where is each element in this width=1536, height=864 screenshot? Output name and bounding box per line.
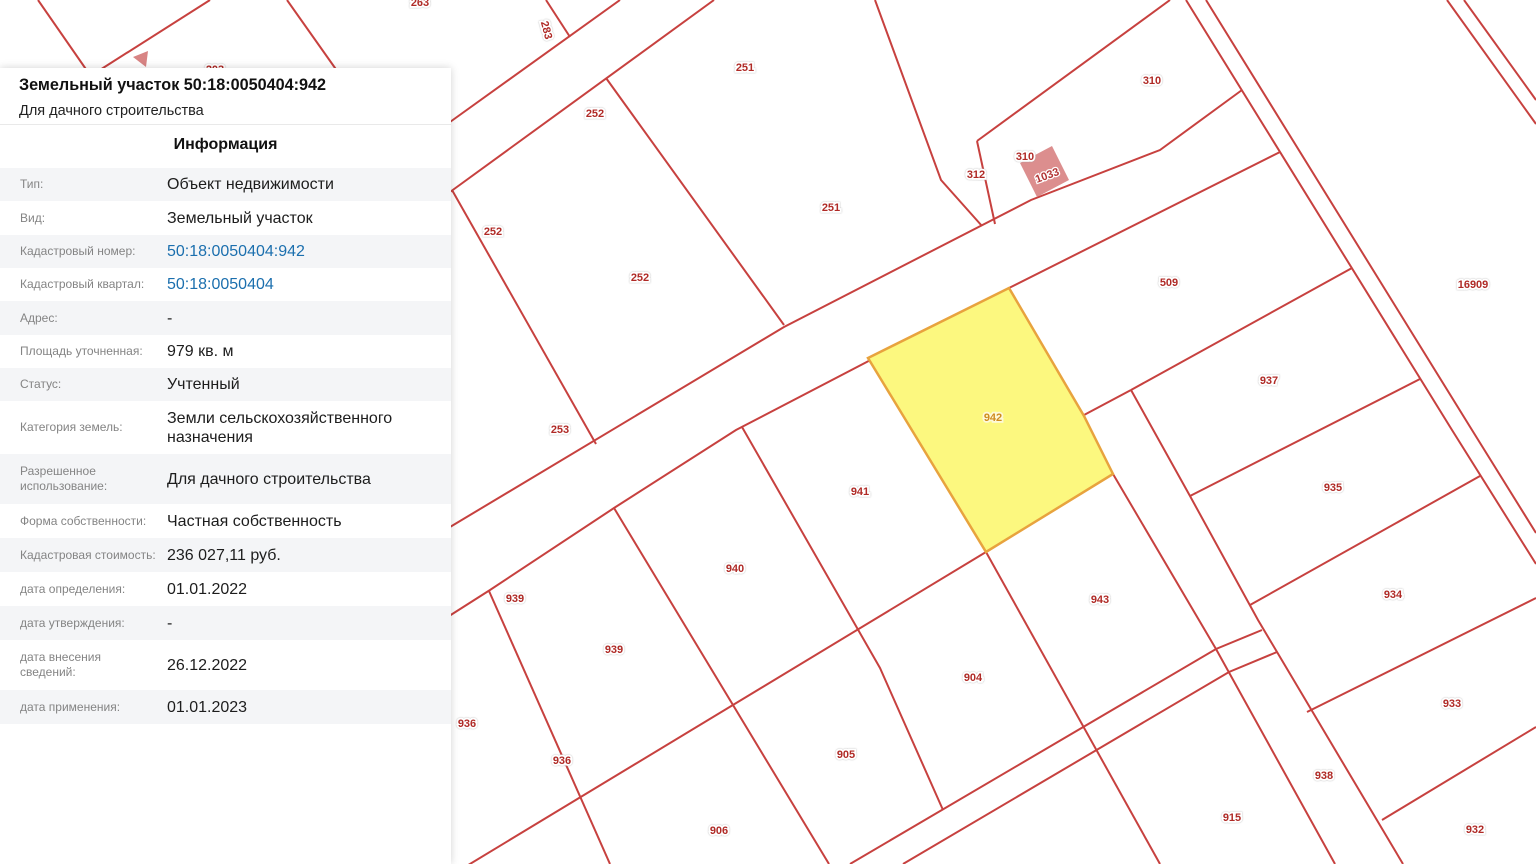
svg-text:252: 252 [586, 108, 604, 120]
svg-text:251: 251 [822, 202, 840, 214]
svg-text:310: 310 [1016, 151, 1034, 163]
svg-text:932: 932 [1466, 824, 1484, 836]
svg-text:251: 251 [736, 62, 754, 74]
svg-text:940: 940 [726, 563, 744, 575]
svg-text:263: 263 [411, 0, 429, 9]
svg-text:904: 904 [964, 672, 983, 684]
svg-text:938: 938 [1315, 770, 1333, 782]
svg-text:936: 936 [458, 718, 476, 730]
svg-text:939: 939 [506, 593, 524, 605]
svg-text:939: 939 [605, 644, 623, 656]
svg-text:941: 941 [851, 486, 869, 498]
svg-text:934: 934 [1384, 589, 1403, 601]
svg-text:905: 905 [837, 749, 855, 761]
svg-text:16909: 16909 [1458, 279, 1489, 291]
svg-text:252: 252 [484, 226, 502, 238]
svg-text:252: 252 [631, 272, 649, 284]
svg-text:935: 935 [1324, 482, 1342, 494]
svg-text:937: 937 [1260, 375, 1278, 387]
svg-text:312: 312 [967, 169, 985, 181]
svg-text:915: 915 [1223, 812, 1241, 824]
svg-text:283: 283 [538, 20, 554, 41]
svg-text:943: 943 [1091, 594, 1109, 606]
svg-text:933: 933 [1443, 698, 1461, 710]
svg-text:509: 509 [1160, 277, 1178, 289]
svg-text:310: 310 [1143, 75, 1161, 87]
svg-text:942: 942 [984, 412, 1002, 424]
svg-text:253: 253 [551, 424, 569, 436]
svg-text:906: 906 [710, 825, 728, 837]
svg-text:936: 936 [553, 755, 571, 767]
